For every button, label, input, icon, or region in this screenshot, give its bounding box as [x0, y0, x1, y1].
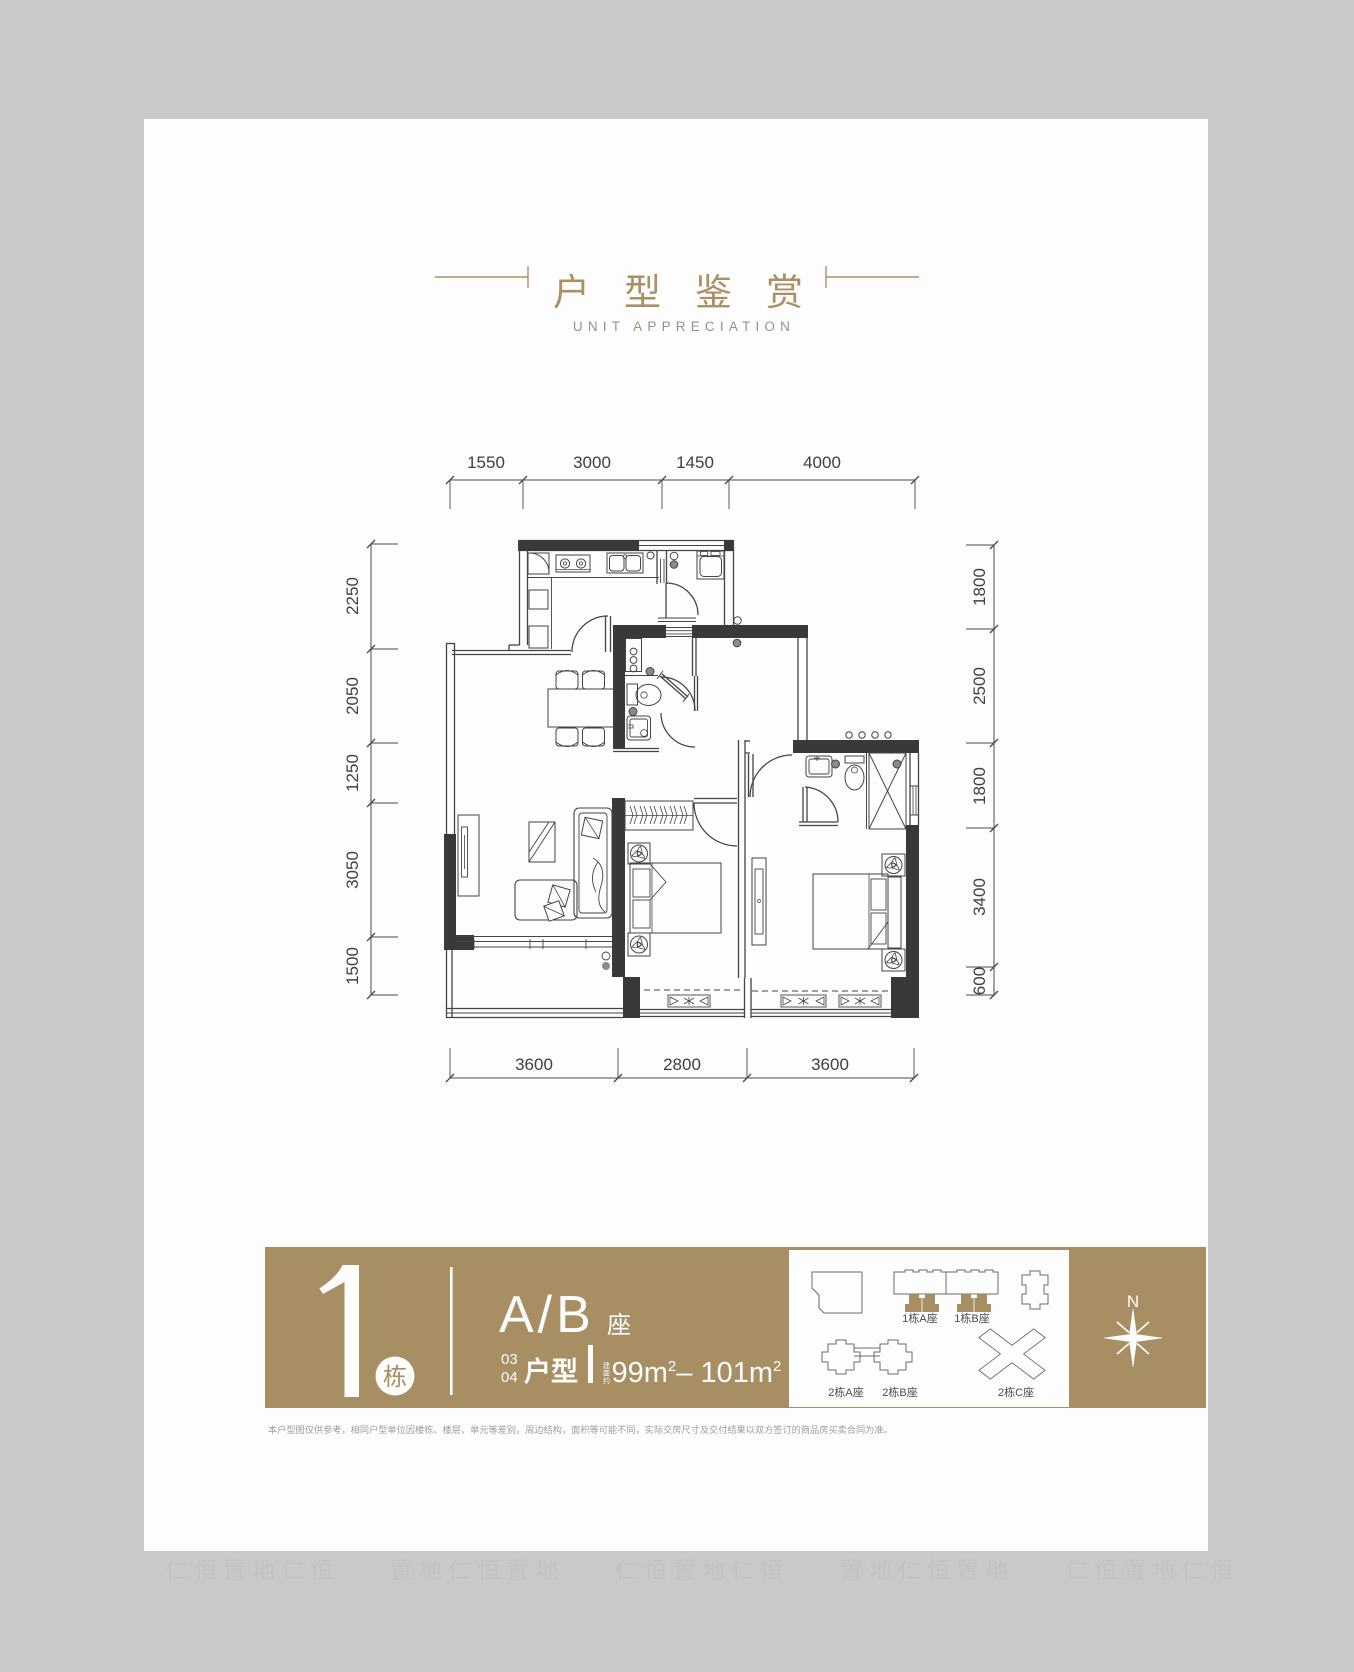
svg-text:1栋B座: 1栋B座: [954, 1311, 989, 1325]
svg-text:仁恒置地仁恒: 仁恒置地仁恒: [615, 1557, 789, 1583]
svg-text:1550: 1550: [467, 453, 505, 472]
svg-text:3600: 3600: [515, 1055, 553, 1074]
svg-text:置地仁恒置地: 置地仁恒置地: [840, 1557, 1014, 1583]
svg-text:约: 约: [603, 1376, 610, 1385]
svg-text:3000: 3000: [573, 453, 611, 472]
svg-text:3050: 3050: [343, 851, 362, 889]
svg-text:仁恒置地仁恒: 仁恒置地仁恒: [165, 1557, 339, 1583]
svg-text:1栋A座: 1栋A座: [902, 1311, 937, 1325]
svg-text:99m2– 101m2: 99m2– 101m2: [612, 1357, 782, 1389]
svg-text:2050: 2050: [343, 677, 362, 715]
svg-text:600: 600: [970, 967, 989, 995]
svg-text:1250: 1250: [343, 754, 362, 792]
svg-text:2250: 2250: [343, 577, 362, 615]
svg-text:UNIT APPRECIATION: UNIT APPRECIATION: [573, 319, 795, 334]
svg-text:户型鉴赏: 户型鉴赏: [553, 272, 837, 313]
svg-text:座: 座: [607, 1312, 631, 1339]
svg-text:置地仁恒置地: 置地仁恒置地: [390, 1557, 564, 1583]
svg-text:2800: 2800: [663, 1055, 701, 1074]
svg-text:A/B: A/B: [499, 1286, 595, 1344]
svg-text:4000: 4000: [803, 453, 841, 472]
svg-text:1500: 1500: [343, 947, 362, 985]
svg-text:3600: 3600: [811, 1055, 849, 1074]
svg-text:2栋B座: 2栋B座: [882, 1385, 917, 1399]
svg-text:1800: 1800: [970, 767, 989, 805]
svg-text:本户型图仅供参考，相同户型单位因楼栋、楼层、单元等差别，周边: 本户型图仅供参考，相同户型单位因楼栋、楼层、单元等差别，周边结构，面积等可能不同…: [268, 1424, 893, 1435]
svg-text:2栋C座: 2栋C座: [998, 1385, 1034, 1399]
svg-text:2栋A座: 2栋A座: [828, 1385, 863, 1399]
svg-text:建: 建: [603, 1361, 610, 1370]
svg-text:户型: 户型: [524, 1356, 578, 1387]
svg-text:04: 04: [501, 1369, 518, 1386]
svg-text:3400: 3400: [970, 878, 989, 916]
svg-text:N: N: [1127, 1292, 1139, 1311]
svg-text:03: 03: [501, 1351, 518, 1368]
svg-text:2500: 2500: [970, 667, 989, 705]
svg-text:1800: 1800: [970, 568, 989, 606]
svg-text:仁恒置地仁恒: 仁恒置地仁恒: [1065, 1557, 1239, 1583]
svg-text:面: 面: [603, 1370, 610, 1378]
svg-text:1450: 1450: [676, 453, 714, 472]
svg-text:栋: 栋: [383, 1364, 407, 1391]
